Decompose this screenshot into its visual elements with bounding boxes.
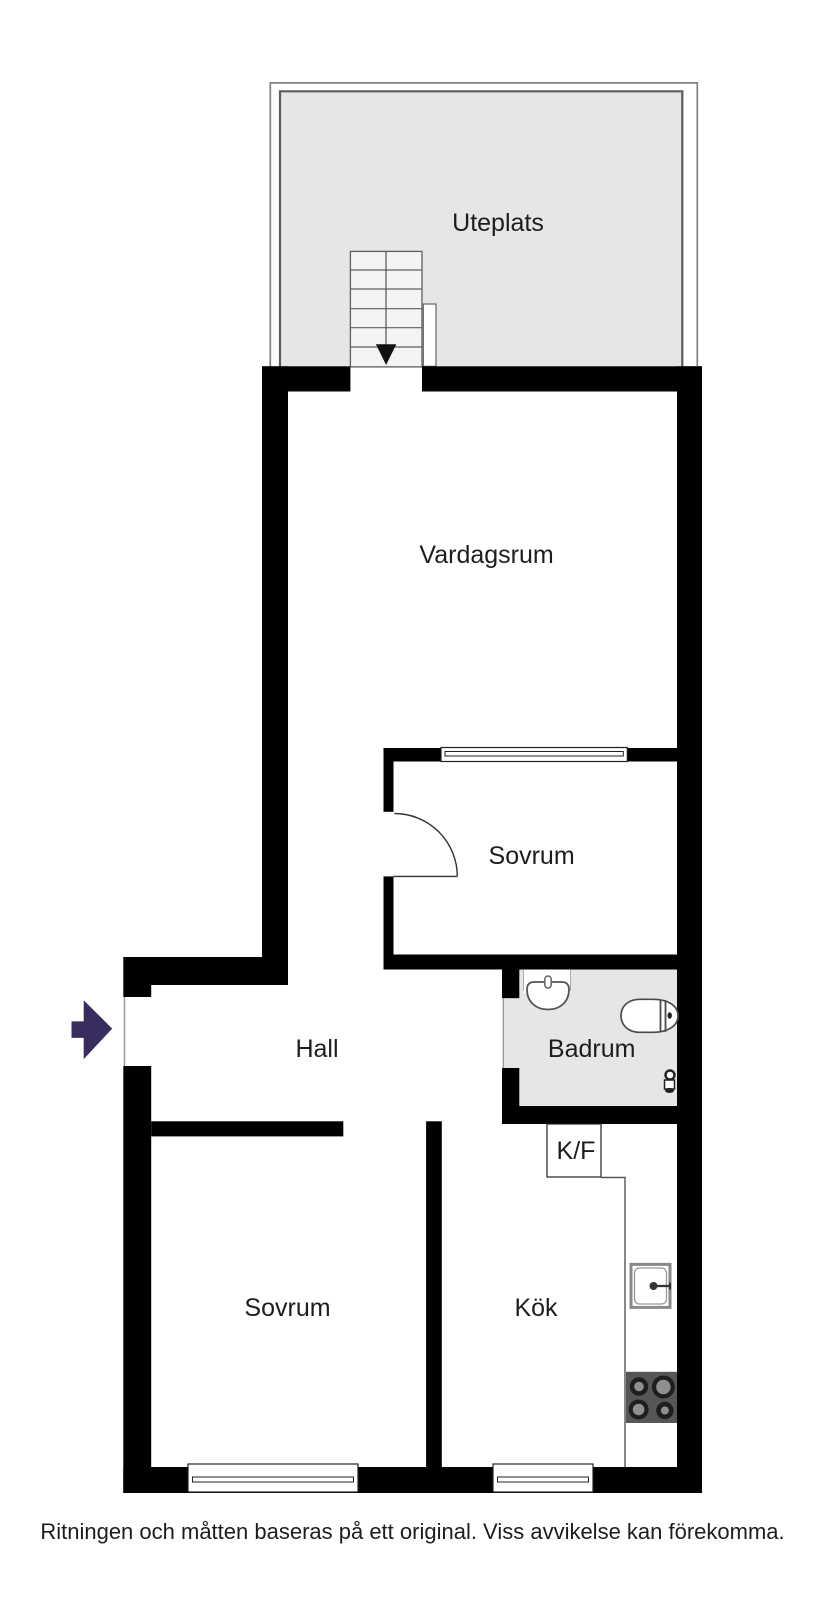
svg-text:Sovrum: Sovrum: [489, 842, 575, 870]
svg-text:Vardagsrum: Vardagsrum: [419, 541, 553, 569]
svg-text:Uteplats: Uteplats: [452, 209, 544, 237]
svg-text:Badrum: Badrum: [548, 1035, 636, 1063]
svg-text:Ritningen och måtten baseras p: Ritningen och måtten baseras på ett orig…: [40, 1519, 784, 1544]
svg-text:Sovrum: Sovrum: [244, 1294, 330, 1322]
svg-text:Kök: Kök: [514, 1294, 558, 1322]
svg-text:Hall: Hall: [295, 1035, 338, 1063]
svg-text:K/F: K/F: [557, 1137, 596, 1165]
